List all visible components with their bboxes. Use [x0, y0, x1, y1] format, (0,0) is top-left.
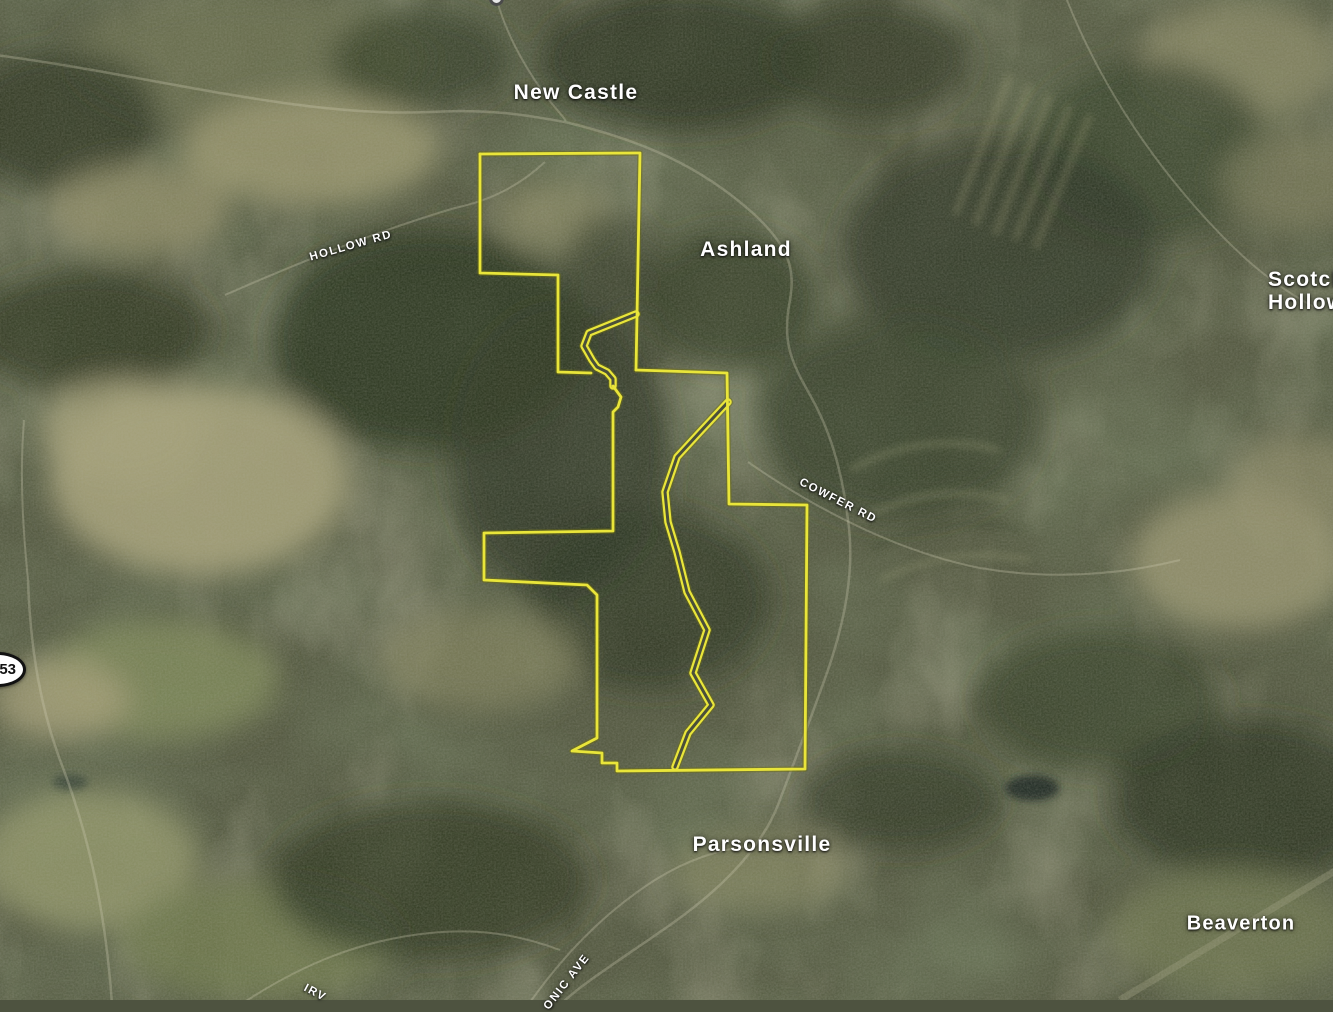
- route-shield-number: 53: [0, 661, 16, 678]
- satellite-map-canvas[interactable]: New Castle Ashland Scotch Hollow Parsons…: [0, 0, 1333, 1000]
- satellite-imagery: [0, 0, 1333, 1000]
- satellite-map-screenshot: { "map": { "view_type": "satellite", "pl…: [0, 0, 1333, 1000]
